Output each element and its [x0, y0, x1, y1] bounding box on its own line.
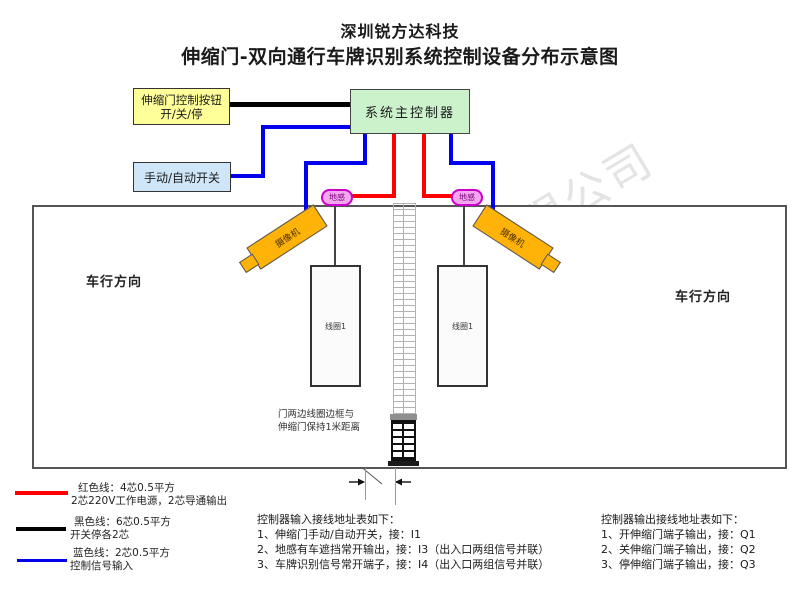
- ground-sensor-left-label: 地感: [329, 192, 345, 203]
- red-wire-segment: [422, 132, 426, 198]
- manual-auto-switch-box: 手动/自动开关: [133, 162, 231, 192]
- blue-wire-segment: [263, 125, 350, 129]
- legend-red-swatch: [15, 491, 68, 495]
- input-wiring-row: 1、伸缩门手动/自动开关，接：I1: [257, 527, 549, 542]
- output-wiring-table: 控制器输出接线地址表如下： 1、开伸缩门端子输出，接：Q1 2、关伸缩门端子输出…: [601, 512, 756, 572]
- output-wiring-row: 3、停伸缩门端子输出，接：Q3: [601, 557, 756, 572]
- red-wire-segment: [422, 194, 454, 198]
- gate-distance-note-line1: 门两边线圈边框与: [278, 409, 360, 422]
- red-wire-segment: [352, 194, 396, 198]
- legend-black-desc: 开关停各2芯: [70, 527, 129, 542]
- diagram-canvas: 深圳市锐方达科技有限公司 深圳锐方达科技 伸缩门-双向通行车牌识别系统控制设备分…: [0, 0, 800, 601]
- output-wiring-row: 2、关伸缩门端子输出，接：Q2: [601, 542, 756, 557]
- coil-left: 线圈1: [310, 265, 361, 387]
- company-title: 深圳锐方达科技: [0, 18, 800, 42]
- manual-auto-switch-label: 手动/自动开关: [144, 169, 220, 186]
- output-wiring-table-title: 控制器输出接线地址表如下：: [601, 512, 756, 527]
- legend-blue-swatch: [17, 559, 67, 562]
- sensor-coil-connector-left: [334, 206, 336, 265]
- gate-control-button-label-line1: 伸缩门控制按钮: [141, 93, 222, 107]
- direction-label-left: 车行方向: [86, 271, 142, 290]
- sensor-coil-connector-right: [463, 206, 465, 265]
- dimension-arrows-icon: [340, 470, 420, 496]
- blue-wire-segment: [261, 125, 265, 178]
- coil-right-label: 线圈1: [452, 321, 473, 332]
- blue-wire-segment: [304, 161, 367, 165]
- ground-sensor-right-label: 地感: [459, 192, 475, 203]
- gate-distance-note: 门两边线圈边框与 伸缩门保持1米距离: [278, 409, 360, 434]
- main-controller-label: 系统主控制器: [365, 102, 455, 121]
- ground-sensor-right: 地感: [451, 189, 483, 206]
- gate-base: [388, 461, 419, 466]
- coil-left-label: 线圈1: [325, 321, 346, 332]
- blue-wire-segment: [449, 161, 495, 165]
- retractable-gate: [391, 420, 416, 461]
- blue-wire-segment: [229, 174, 263, 178]
- diagram-title: 伸缩门-双向通行车牌识别系统控制设备分布示意图: [0, 42, 800, 69]
- gate-track: [393, 203, 416, 414]
- input-wiring-row: 2、地感有车遮挡常开输出，接：I3（出入口两组信号并联）: [257, 542, 549, 557]
- gate-control-button-label-line2: 开/关/停: [160, 107, 202, 121]
- coil-right: 线圈1: [437, 265, 488, 387]
- gate-distance-note-line2: 伸缩门保持1米距离: [278, 422, 360, 435]
- input-wiring-row: 3、车牌识别信号常开端子，接：I4（出入口两组信号并联）: [257, 557, 549, 572]
- ground-sensor-left: 地感: [321, 189, 353, 206]
- gate-control-button-box: 伸缩门控制按钮 开/关/停: [133, 88, 230, 125]
- legend-red-desc: 2芯220V工作电源，2芯导通输出: [71, 493, 227, 508]
- dimension-line-right: [395, 468, 396, 505]
- output-wiring-row: 1、开伸缩门端子输出，接：Q1: [601, 527, 756, 542]
- legend-black-swatch: [16, 527, 66, 531]
- input-wiring-table: 控制器输入接线地址表如下： 1、伸缩门手动/自动开关，接：I1 2、地感有车遮挡…: [257, 512, 549, 572]
- main-controller-box: 系统主控制器: [350, 89, 470, 134]
- direction-label-right: 车行方向: [675, 286, 731, 305]
- input-wiring-table-title: 控制器输入接线地址表如下：: [257, 512, 549, 527]
- camera-right-label: 摄像机: [498, 224, 528, 250]
- red-wire-segment: [392, 132, 396, 198]
- black-wire-segment: [228, 102, 350, 107]
- legend-blue-desc: 控制信号输入: [70, 558, 133, 573]
- dimension-line-left: [365, 468, 366, 500]
